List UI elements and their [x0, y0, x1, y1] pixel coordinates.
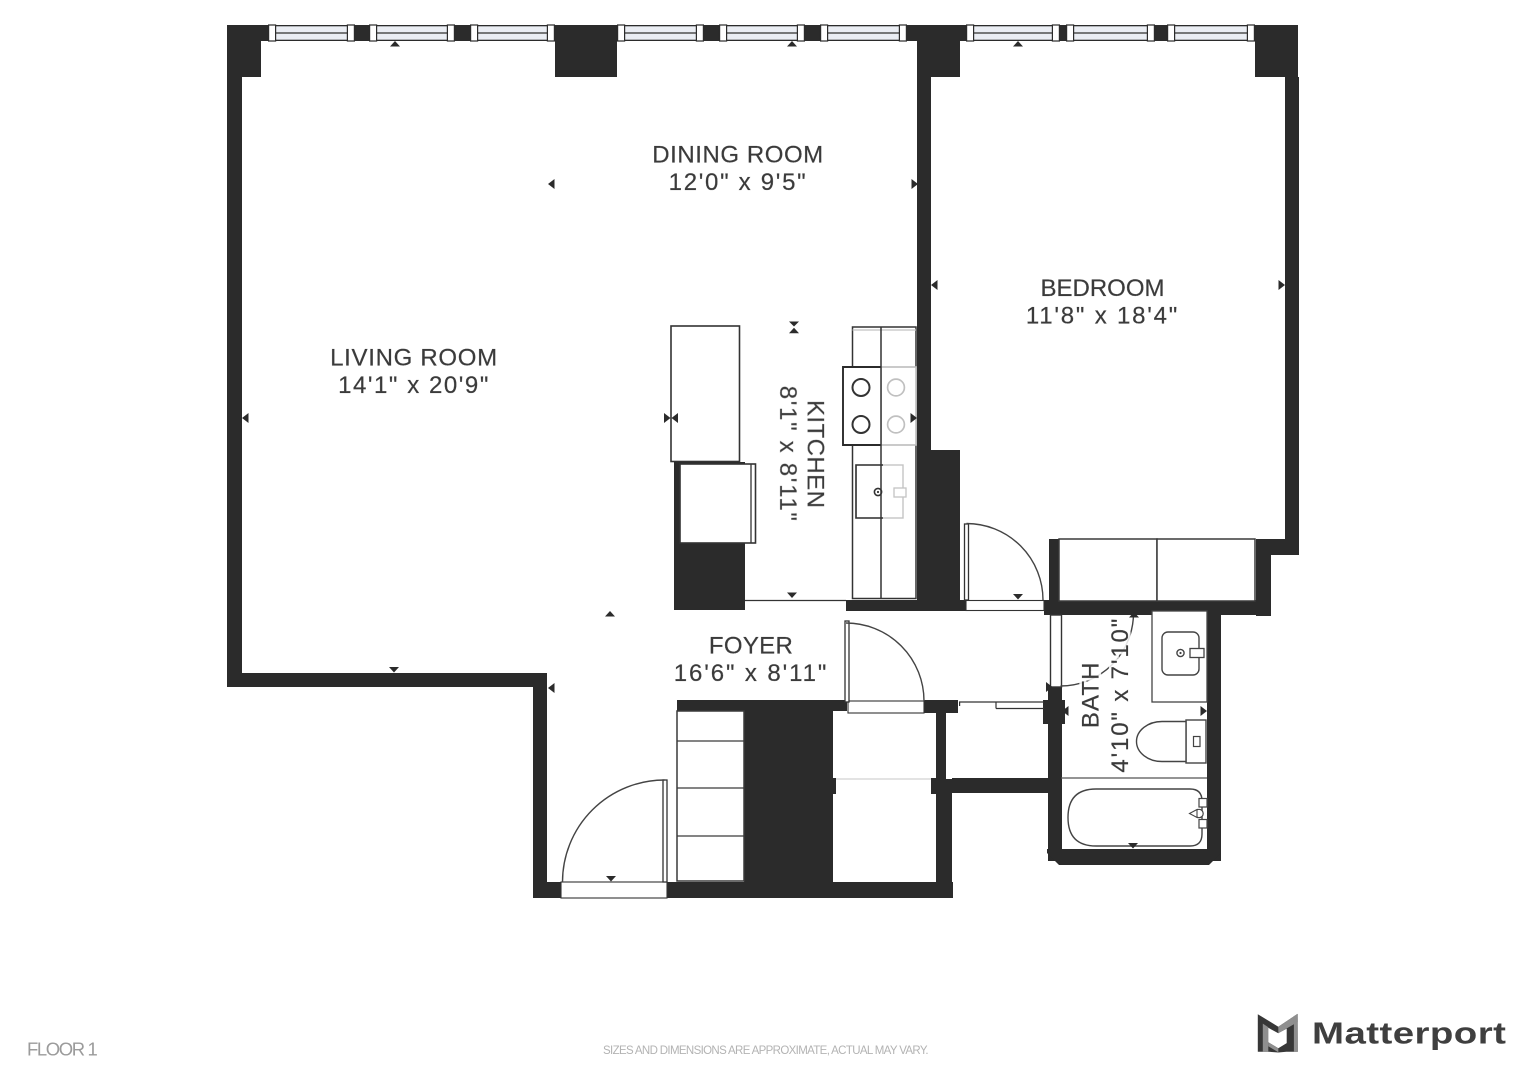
svg-text:BATH: BATH: [1078, 661, 1105, 728]
svg-text:8'1" x 8'11": 8'1" x 8'11": [774, 386, 801, 523]
svg-text:FOYER: FOYER: [709, 633, 793, 660]
svg-text:4'10" x 7'10": 4'10" x 7'10": [1107, 617, 1134, 773]
svg-text:LIVING ROOM: LIVING ROOM: [330, 345, 498, 372]
svg-text:KITCHEN: KITCHEN: [801, 400, 828, 508]
svg-text:14'1" x 20'9": 14'1" x 20'9": [338, 372, 490, 399]
svg-text:12'0" x 9'5": 12'0" x 9'5": [669, 169, 808, 196]
svg-text:FLOOR 1: FLOOR 1: [27, 1039, 97, 1060]
svg-text:DINING ROOM: DINING ROOM: [652, 142, 824, 169]
svg-text:BEDROOM: BEDROOM: [1040, 275, 1164, 302]
svg-text:Matterport: Matterport: [1312, 1016, 1506, 1051]
svg-text:11'8" x 18'4": 11'8" x 18'4": [1026, 303, 1179, 330]
svg-text:16'6" x 8'11": 16'6" x 8'11": [674, 660, 829, 687]
svg-text:SIZES AND DIMENSIONS ARE APPRO: SIZES AND DIMENSIONS ARE APPROXIMATE, AC…: [603, 1045, 928, 1057]
